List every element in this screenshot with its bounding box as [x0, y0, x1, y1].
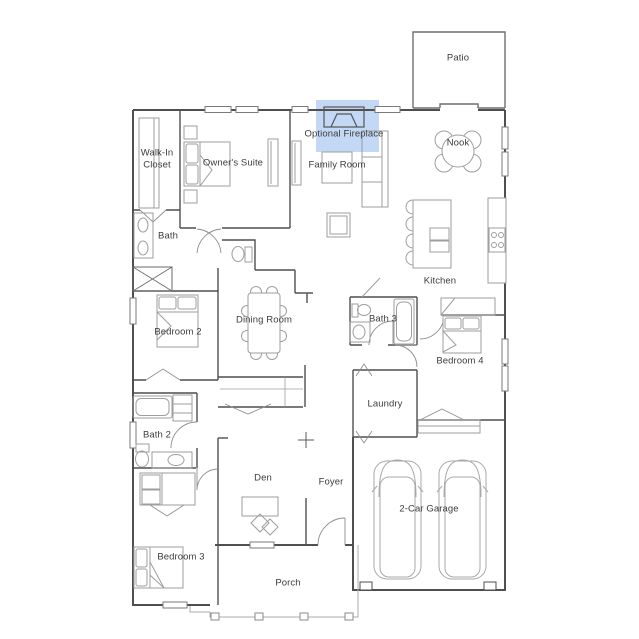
porch-slab [190, 545, 358, 620]
room-label-laundry: Laundry [367, 399, 402, 410]
car [372, 460, 423, 579]
furniture [133, 118, 506, 588]
room-label-bath-2: Bath 2 [143, 430, 171, 441]
room-label-bedroom-3: Bedroom 3 [157, 552, 204, 563]
bedroom4-bed [443, 316, 481, 353]
room-label-owners-suite: Owner's Suite [203, 158, 263, 169]
room-label-bedroom-4: Bedroom 4 [436, 356, 483, 367]
room-label-bath-3: Bath 3 [369, 314, 397, 325]
room-label-family-room: Family Room [308, 160, 365, 171]
room-label-foyer: Foyer [319, 477, 344, 488]
shower [133, 267, 172, 291]
coat-closet-shelf [220, 377, 303, 407]
room-label-bath: Bath [158, 231, 178, 242]
kitchen-island [406, 200, 451, 268]
column-markers [298, 293, 314, 448]
optional-fireplace-highlight[interactable] [316, 100, 379, 152]
bedroom2-bed [157, 295, 198, 347]
room-label-walk-in-closet: Walk-In Closet [130, 148, 184, 173]
room-label-patio: Patio [447, 53, 469, 64]
bedroom4-closet [418, 420, 480, 433]
media-console [292, 141, 301, 185]
toilet [232, 247, 252, 263]
room-label-bedroom-2: Bedroom 2 [154, 327, 201, 338]
room-label-dining-room: Dining Room [236, 315, 292, 326]
den-desk [242, 497, 278, 535]
room-label-garage: 2-Car Garage [399, 504, 458, 515]
room-label-den: Den [254, 473, 272, 484]
car [437, 460, 488, 579]
room-label-porch: Porch [275, 578, 300, 589]
floor-plan: Patio Optional Fireplace Walk-In Closet … [0, 0, 639, 639]
armchair [327, 213, 350, 237]
room-label-nook: Nook [447, 138, 470, 149]
floorplan-drawing [0, 0, 639, 639]
room-label-kitchen: Kitchen [424, 276, 456, 287]
bedroom3-closet [140, 473, 195, 505]
dresser [268, 139, 278, 186]
patio-walls [413, 32, 505, 108]
room-label-optional-fireplace: Optional Fireplace [305, 129, 384, 140]
garage-cars [360, 460, 496, 590]
